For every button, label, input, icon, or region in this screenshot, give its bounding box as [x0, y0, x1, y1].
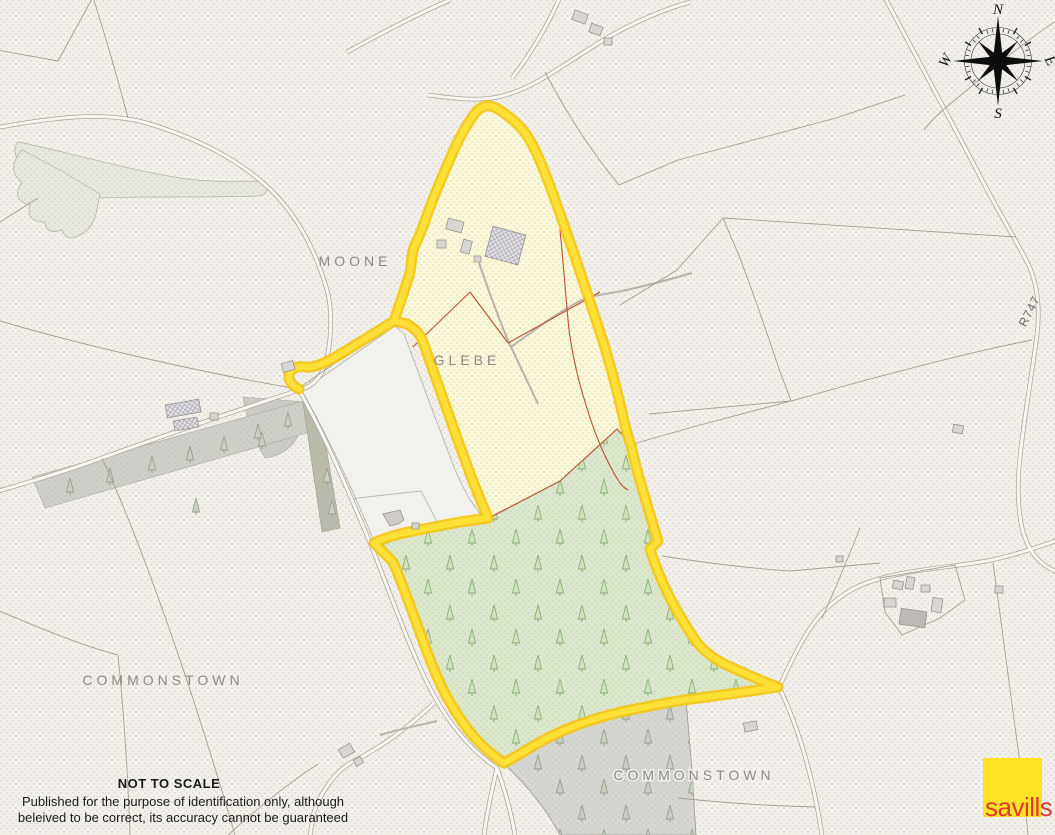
- building: [931, 597, 943, 612]
- building: [412, 523, 419, 529]
- place-label-commonstown-south: COMMONSTOWN: [613, 767, 774, 783]
- building: [892, 580, 903, 590]
- map-canvas: MOONE GLEBE COMMONSTOWN COMMONSTOWN R747: [0, 0, 1055, 835]
- building: [995, 586, 1003, 593]
- building: [604, 38, 612, 45]
- place-label-moone: MOONE: [319, 253, 392, 269]
- footer-scale-note: NOT TO SCALE: [60, 776, 278, 791]
- savills-logo-text: savills: [985, 792, 1052, 823]
- building: [952, 424, 963, 434]
- building: [743, 721, 757, 732]
- building: [210, 413, 218, 420]
- compass-letter-n: N: [992, 2, 1004, 18]
- footer-disclaimer-line2: beleived to be correct, its accuracy can…: [5, 810, 361, 826]
- compass-letter-s: S: [994, 106, 1002, 122]
- building: [437, 240, 446, 248]
- footer-disclaimer: Published for the purpose of identificat…: [5, 794, 361, 825]
- building: [921, 585, 930, 592]
- place-label-commonstown-west: COMMONSTOWN: [82, 672, 243, 688]
- footer-disclaimer-line1: Published for the purpose of identificat…: [5, 794, 361, 810]
- building: [905, 576, 915, 589]
- building: [474, 256, 481, 262]
- map-screenshot: MOONE GLEBE COMMONSTOWN COMMONSTOWN R747: [0, 0, 1055, 835]
- building: [884, 598, 896, 607]
- building: [899, 608, 927, 627]
- building: [836, 556, 843, 562]
- place-label-glebe: GLEBE: [434, 352, 501, 368]
- savills-logo: savills: [983, 758, 1042, 817]
